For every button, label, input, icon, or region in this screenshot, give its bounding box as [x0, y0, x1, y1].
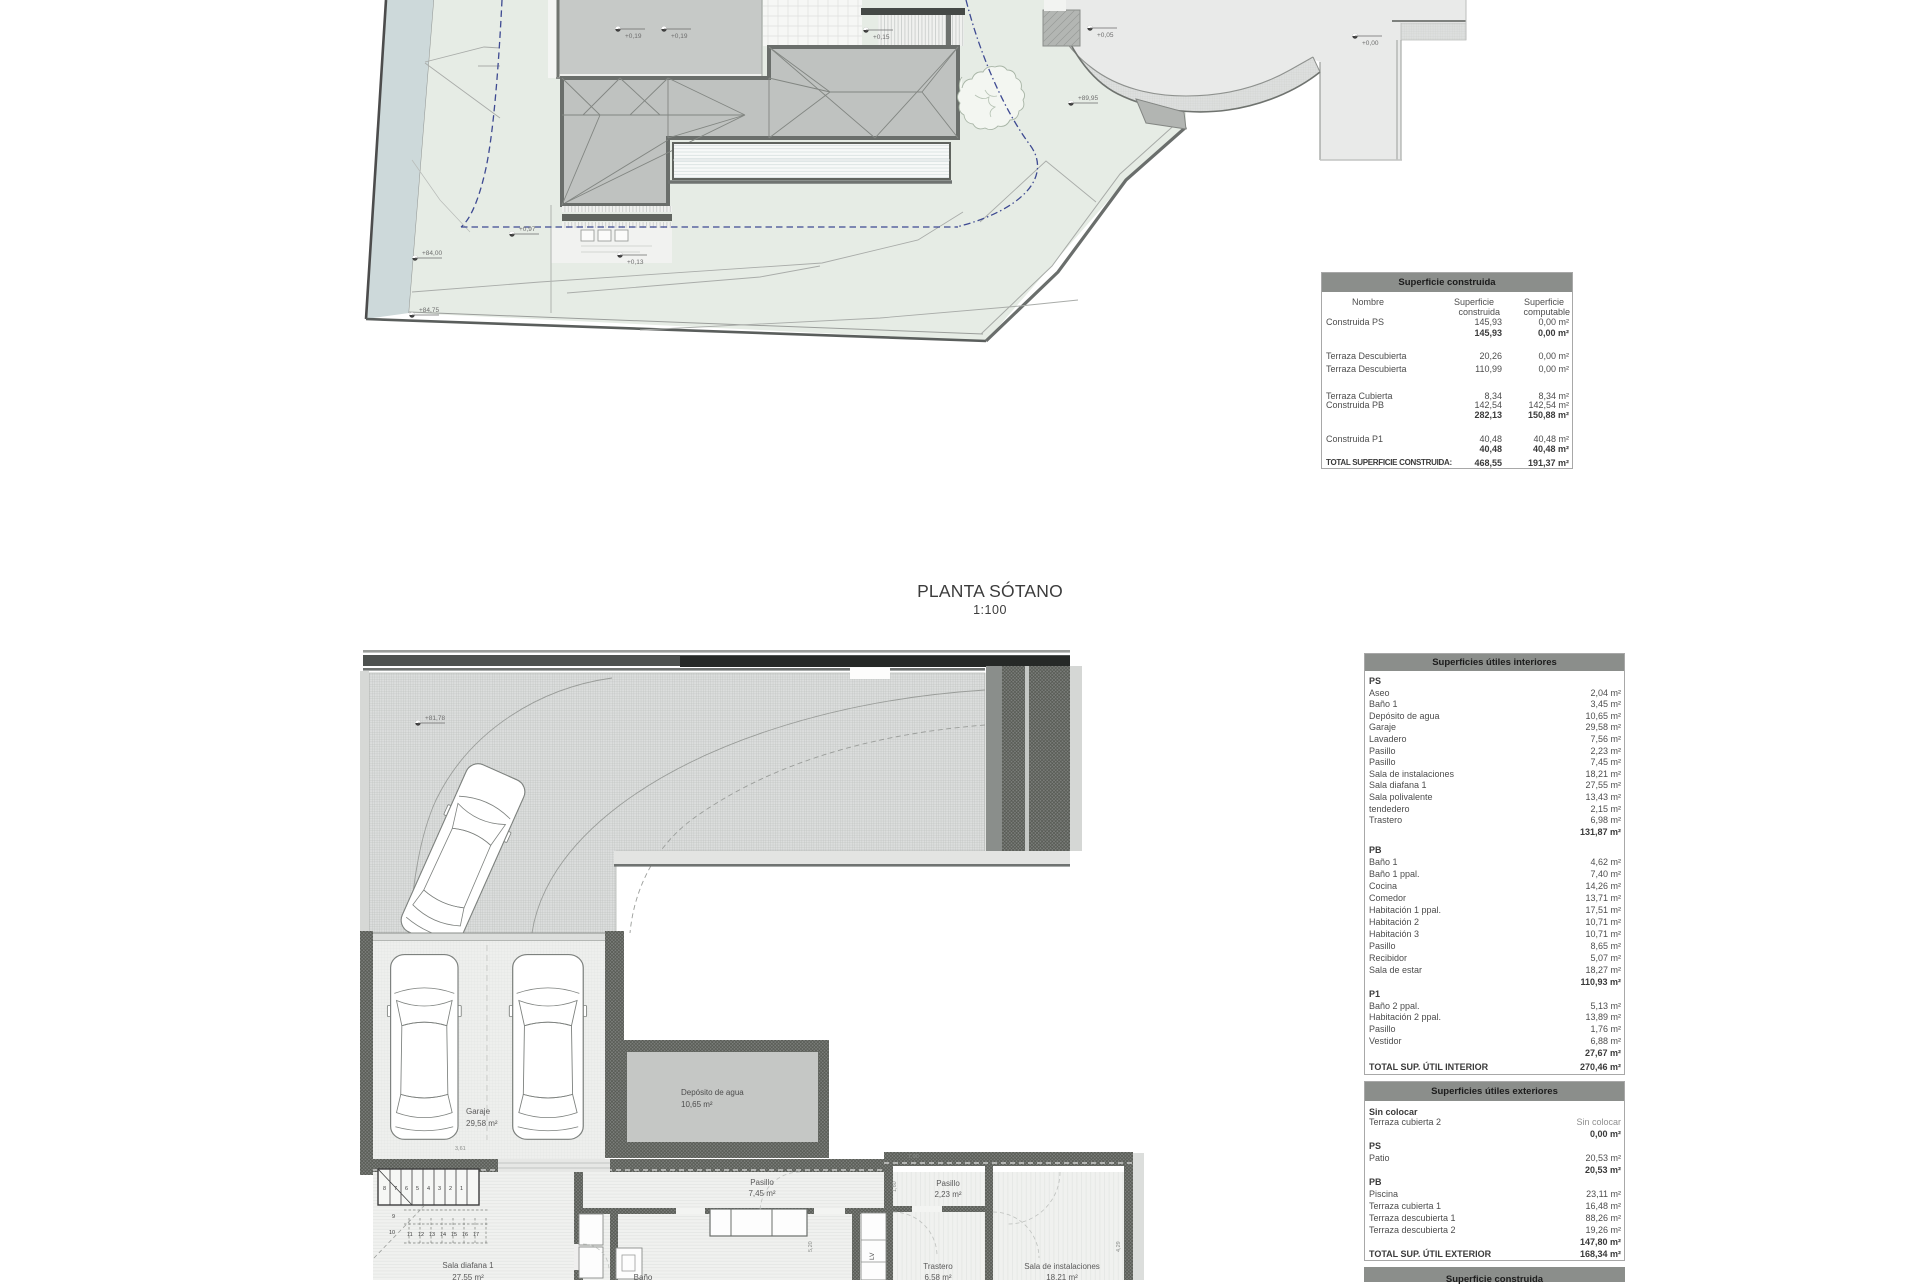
svg-text:4: 4 [427, 1186, 430, 1192]
svg-text:+0,00: +0,00 [1362, 40, 1379, 47]
svg-text:2,23 m²: 2,23 m² [934, 1190, 961, 1199]
svg-text:14: 14 [440, 1232, 446, 1238]
svg-text:27,55 m²: 27,55 m² [452, 1273, 484, 1280]
svg-text:2: 2 [449, 1186, 452, 1192]
svg-text:Sala de instalaciones: Sala de instalaciones [1024, 1262, 1100, 1271]
svg-text:6: 6 [405, 1186, 408, 1192]
svg-text:29,58 m²: 29,58 m² [466, 1119, 498, 1128]
svg-text:1: 1 [460, 1186, 463, 1192]
svg-text:1,60: 1,60 [892, 1181, 898, 1192]
svg-text:15: 15 [451, 1232, 457, 1238]
svg-text:7,90: 7,90 [908, 1154, 919, 1160]
svg-text:12: 12 [418, 1232, 424, 1238]
svg-text:9: 9 [392, 1214, 395, 1220]
svg-text:+0,13: +0,13 [627, 259, 644, 266]
svg-text:7: 7 [394, 1186, 397, 1192]
svg-text:11: 11 [407, 1232, 413, 1238]
svg-text:17: 17 [473, 1232, 479, 1238]
svg-text:Pasillo: Pasillo [936, 1179, 960, 1188]
svg-text:10,65 m²: 10,65 m² [681, 1100, 713, 1109]
svg-text:+84,00: +84,00 [422, 250, 442, 257]
svg-text:+0,19: +0,19 [671, 33, 688, 40]
svg-text:Garaje: Garaje [466, 1107, 491, 1116]
svg-text:13: 13 [429, 1232, 435, 1238]
svg-text:3,61: 3,61 [455, 1146, 466, 1152]
svg-text:Baño: Baño [634, 1273, 653, 1280]
svg-text:6,58 m²: 6,58 m² [924, 1273, 951, 1280]
svg-text:4,29: 4,29 [1116, 1241, 1122, 1252]
svg-text:+0,15: +0,15 [873, 34, 890, 41]
svg-text:+84,75: +84,75 [419, 307, 439, 314]
svg-text:5: 5 [416, 1186, 419, 1192]
svg-text:8: 8 [383, 1186, 386, 1192]
svg-text:+0,05: +0,05 [1097, 32, 1114, 39]
svg-text:Sala diafana 1: Sala diafana 1 [442, 1261, 494, 1270]
svg-text:LV: LV [869, 1252, 876, 1260]
svg-text:+81,78: +81,78 [425, 715, 445, 722]
svg-text:Pasillo: Pasillo [750, 1178, 774, 1187]
svg-text:+0,19: +0,19 [625, 33, 642, 40]
svg-text:18,21 m²: 18,21 m² [1046, 1273, 1078, 1280]
svg-text:5,20: 5,20 [808, 1241, 814, 1252]
svg-text:+89,95: +89,95 [1078, 95, 1098, 102]
svg-text:3: 3 [438, 1186, 441, 1192]
svg-text:10: 10 [389, 1230, 395, 1236]
svg-text:+0,97: +0,97 [519, 226, 536, 233]
svg-text:Trastero: Trastero [923, 1262, 953, 1271]
svg-text:7,45 m²: 7,45 m² [748, 1189, 775, 1198]
svg-text:16: 16 [462, 1232, 468, 1238]
svg-text:Depósito de agua: Depósito de agua [681, 1088, 744, 1097]
